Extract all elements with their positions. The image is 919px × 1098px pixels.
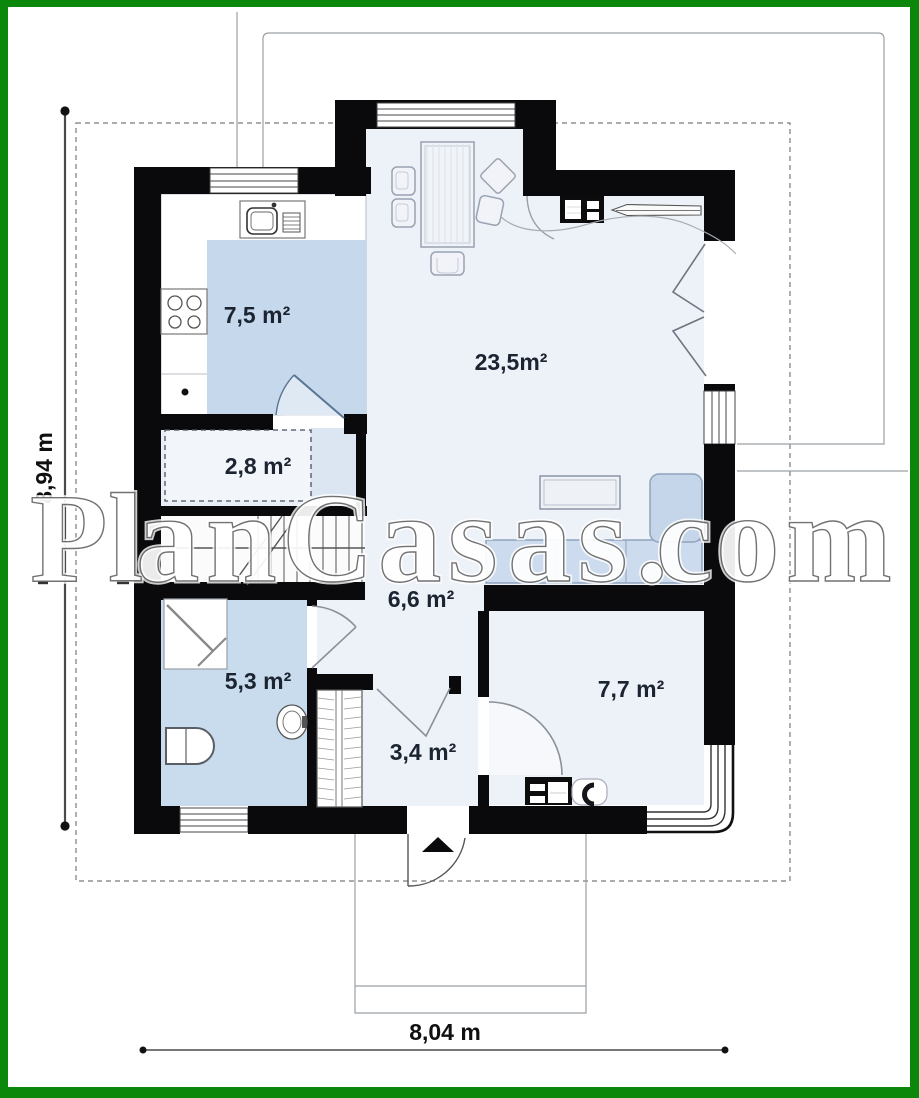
svg-text:5,3 m²: 5,3 m²: [225, 668, 292, 694]
svg-text:8,04 m: 8,04 m: [409, 1019, 481, 1045]
svg-text:7,5 m²: 7,5 m²: [224, 302, 291, 328]
svg-text:7,7 m²: 7,7 m²: [598, 676, 665, 702]
svg-text:PlanCasas.com: PlanCasas.com: [30, 469, 892, 609]
svg-text:3,4 m²: 3,4 m²: [390, 739, 457, 765]
svg-text:23,5m²: 23,5m²: [475, 349, 548, 375]
